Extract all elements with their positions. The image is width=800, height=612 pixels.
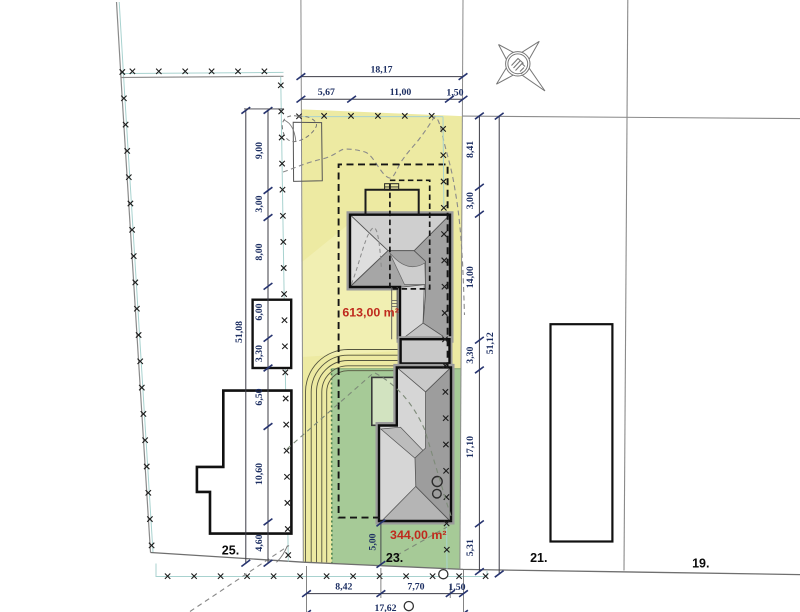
svg-text:7,70: 7,70	[407, 582, 424, 593]
svg-text:6,00: 6,00	[254, 303, 265, 320]
svg-text:19.: 19.	[692, 557, 709, 571]
svg-text:5,00: 5,00	[368, 533, 379, 550]
svg-text:51,12: 51,12	[485, 332, 496, 354]
svg-text:14,00: 14,00	[465, 266, 476, 288]
svg-text:51,08: 51,08	[234, 321, 245, 343]
svg-text:8,41: 8,41	[465, 141, 476, 158]
svg-text:25.: 25.	[222, 544, 239, 558]
svg-text:344,00 m²: 344,00 m²	[390, 528, 446, 542]
svg-text:17,10: 17,10	[465, 436, 476, 458]
svg-text:9,00: 9,00	[254, 142, 265, 159]
svg-text:21.: 21.	[530, 551, 547, 565]
svg-text:10,60: 10,60	[254, 463, 265, 485]
svg-text:23.: 23.	[386, 551, 403, 565]
svg-text:5,67: 5,67	[318, 87, 335, 98]
svg-text:8,42: 8,42	[335, 582, 352, 593]
svg-text:3,30: 3,30	[254, 345, 265, 362]
svg-text:8,00: 8,00	[254, 243, 265, 260]
svg-text:5,31: 5,31	[465, 539, 476, 556]
svg-text:3,30: 3,30	[465, 346, 476, 363]
svg-text:4,60: 4,60	[254, 534, 265, 551]
svg-text:6,50: 6,50	[254, 388, 265, 405]
svg-text:18,17: 18,17	[370, 65, 392, 76]
svg-text:11,00: 11,00	[390, 87, 412, 98]
svg-text:3,00: 3,00	[254, 195, 265, 212]
svg-text:1,50: 1,50	[448, 582, 465, 593]
svg-text:613,00 m²: 613,00 m²	[342, 305, 398, 319]
svg-text:3,00: 3,00	[465, 192, 476, 209]
svg-text:17,62: 17,62	[374, 603, 396, 612]
svg-text:1,50: 1,50	[446, 87, 463, 98]
